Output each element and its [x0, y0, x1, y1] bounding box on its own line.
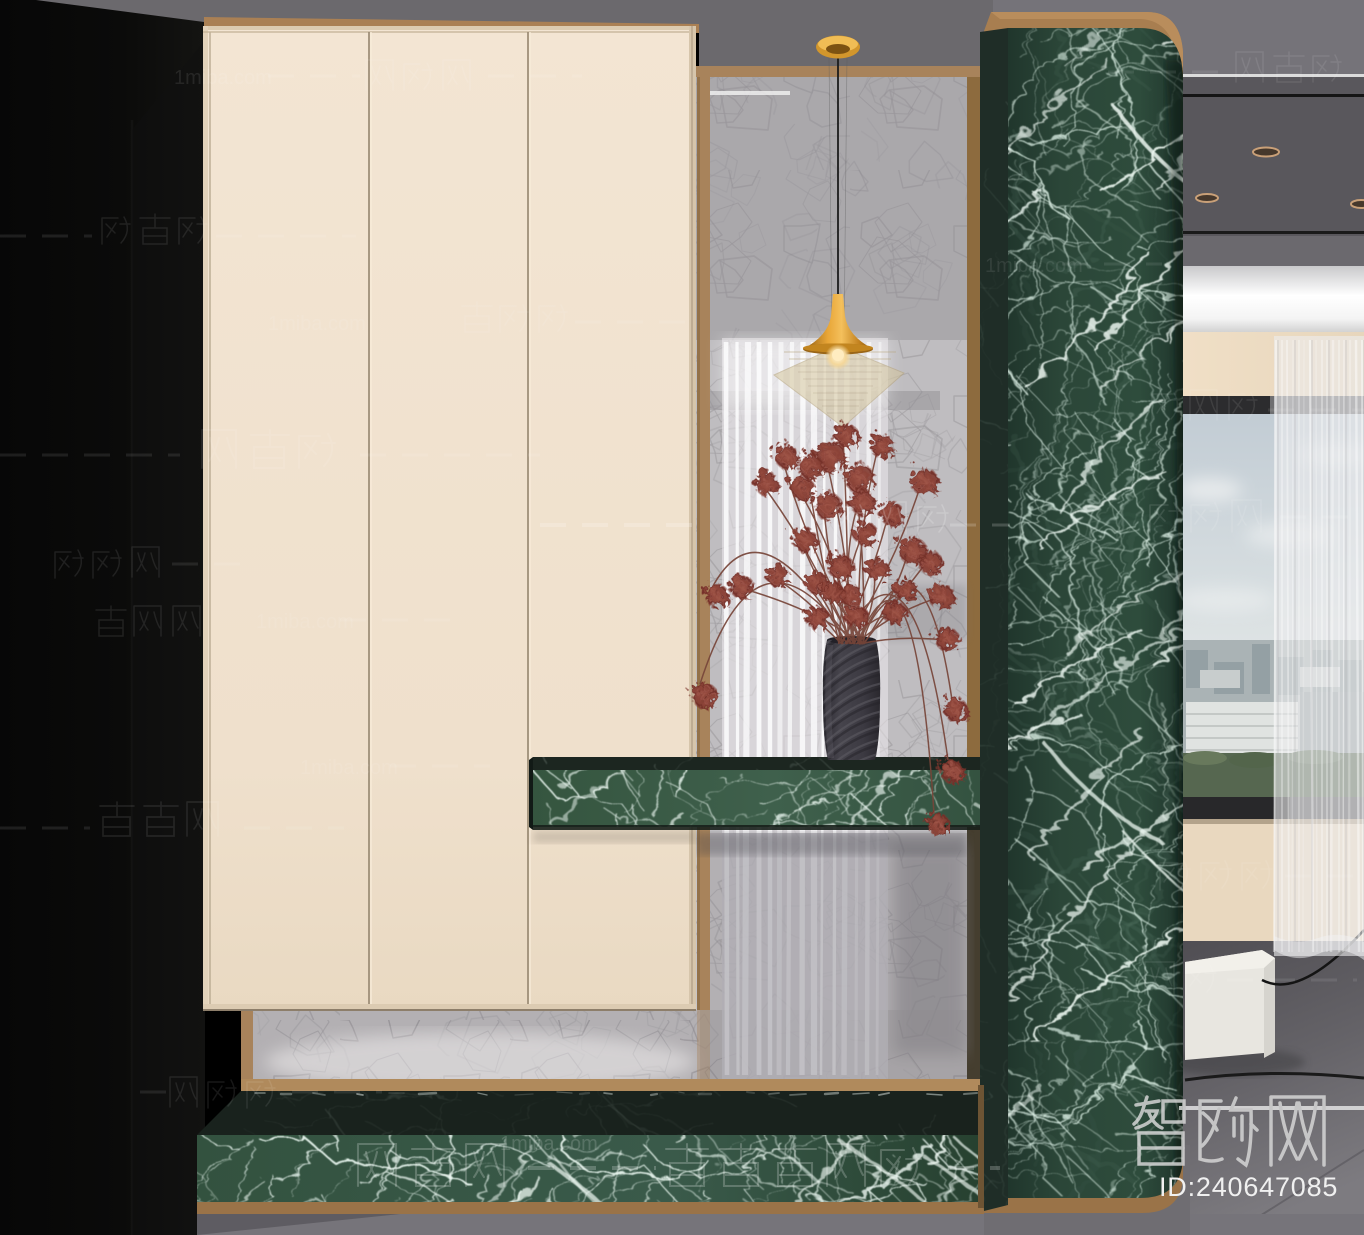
svg-text:1miba.com: 1miba.com: [174, 67, 272, 89]
svg-text:1miba.com: 1miba.com: [268, 313, 366, 335]
svg-text:1miba.com: 1miba.com: [500, 1133, 598, 1155]
svg-text:1miba.com: 1miba.com: [256, 611, 354, 633]
svg-text:ID:240647085: ID:240647085: [1159, 1172, 1338, 1202]
svg-text:1miba.com: 1miba.com: [300, 757, 398, 779]
svg-text:1miba.com: 1miba.com: [985, 255, 1083, 277]
